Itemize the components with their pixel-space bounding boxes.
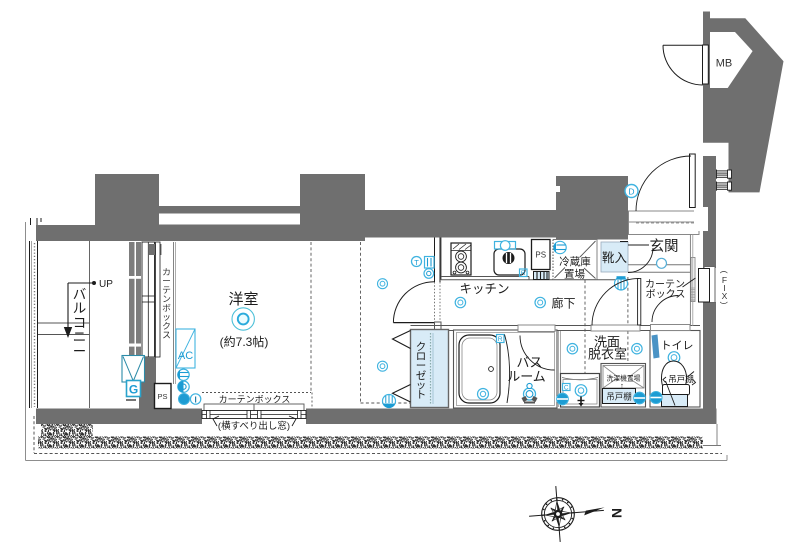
svg-text:冷蔵庫: 冷蔵庫 xyxy=(559,255,591,268)
svg-text:X: X xyxy=(722,291,728,301)
svg-text:(横すべり出し窓): (横すべり出し窓) xyxy=(218,420,290,432)
svg-text:AC: AC xyxy=(178,350,193,362)
svg-text:吊戸棚: 吊戸棚 xyxy=(668,374,694,384)
svg-text:脱衣室: 脱衣室 xyxy=(588,347,627,362)
svg-text:玄関: 玄関 xyxy=(650,238,679,255)
svg-text:バス: バス xyxy=(516,355,542,370)
svg-text:(: ( xyxy=(720,271,730,274)
svg-text:クローゼット: クローゼット xyxy=(416,341,427,401)
svg-text:トイレ: トイレ xyxy=(661,340,694,352)
svg-text:PS: PS xyxy=(535,251,546,260)
svg-text:G: G xyxy=(129,383,138,397)
svg-text:洋室: 洋室 xyxy=(228,291,258,308)
svg-text:UP: UP xyxy=(99,279,113,290)
svg-text:置場: 置場 xyxy=(564,268,585,281)
svg-text:I: I xyxy=(194,395,196,404)
svg-text:MB: MB xyxy=(716,58,733,70)
svg-text:バルコニー: バルコニー xyxy=(73,287,87,359)
svg-text:廊下: 廊下 xyxy=(551,296,575,311)
svg-text:靴入: 靴入 xyxy=(602,251,628,265)
svg-text:カーテンボックス: カーテンボックス xyxy=(219,395,291,405)
svg-text:カーテンボックス: カーテンボックス xyxy=(162,267,171,340)
svg-text:T: T xyxy=(414,258,419,267)
svg-text:キッチン: キッチン xyxy=(459,282,509,296)
svg-text:吊戸棚: 吊戸棚 xyxy=(606,392,632,402)
svg-text:R: R xyxy=(498,336,503,343)
svg-text:C: C xyxy=(564,384,569,391)
svg-text:R: R xyxy=(521,270,526,277)
svg-text:): ) xyxy=(720,302,730,305)
svg-text:D: D xyxy=(628,187,634,197)
svg-text:PS: PS xyxy=(157,392,167,401)
svg-text:N: N xyxy=(609,508,625,518)
svg-text:(約7.3帖): (約7.3帖) xyxy=(220,334,269,349)
svg-text:ルーム: ルーム xyxy=(507,369,546,384)
